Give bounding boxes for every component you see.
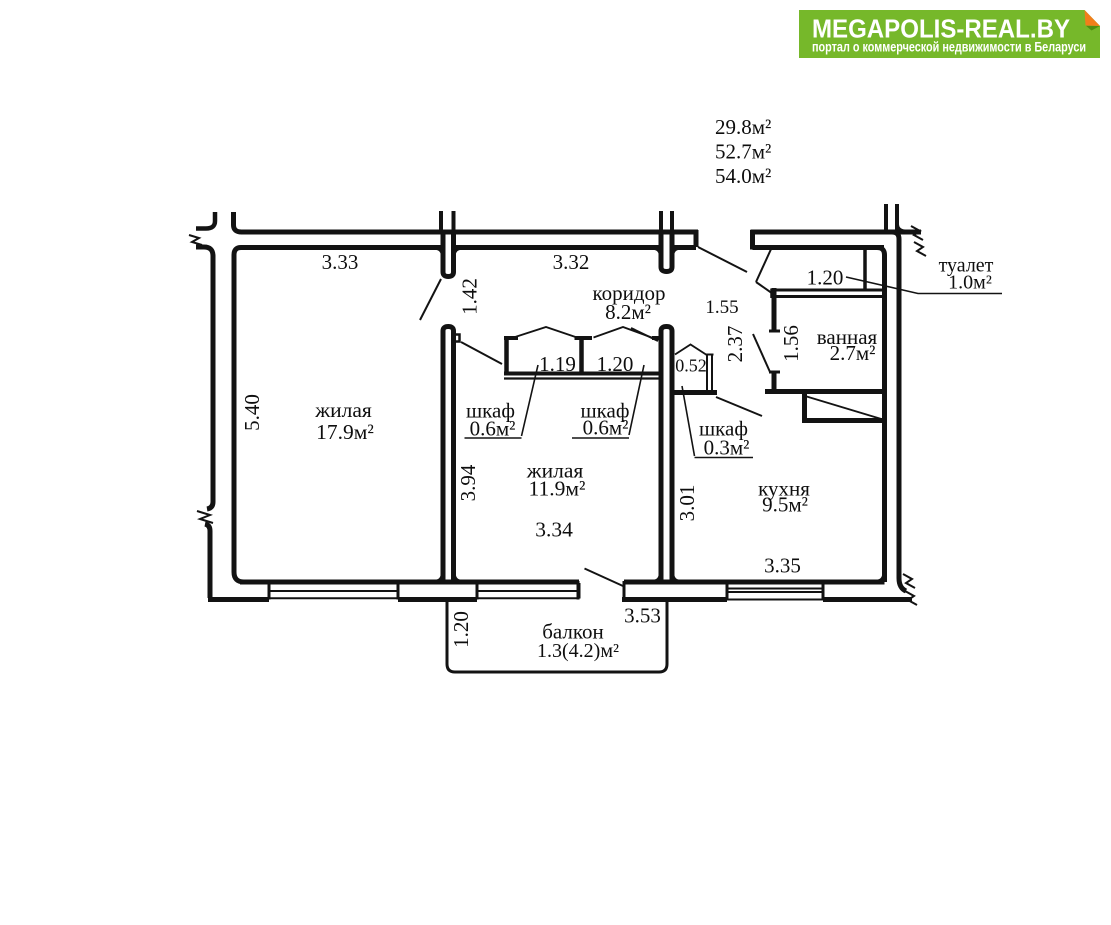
svg-text:52.7м²: 52.7м² bbox=[715, 140, 771, 164]
svg-text:3.33: 3.33 bbox=[322, 250, 359, 274]
svg-text:5.40: 5.40 bbox=[240, 394, 264, 431]
svg-text:1.20: 1.20 bbox=[807, 266, 844, 290]
svg-text:1.20: 1.20 bbox=[597, 352, 634, 376]
svg-text:1.19: 1.19 bbox=[539, 352, 576, 376]
svg-text:3.32: 3.32 bbox=[553, 250, 590, 274]
svg-text:17.9м²: 17.9м² bbox=[316, 420, 374, 444]
svg-text:9.5м²: 9.5м² bbox=[762, 493, 808, 517]
svg-text:1.20: 1.20 bbox=[449, 611, 473, 648]
svg-text:29.8м²: 29.8м² bbox=[715, 115, 771, 139]
svg-text:3.34: 3.34 bbox=[535, 518, 573, 542]
svg-text:11.9м²: 11.9м² bbox=[529, 477, 586, 501]
svg-text:2.37: 2.37 bbox=[723, 326, 747, 363]
svg-text:1.3(4.2)м²: 1.3(4.2)м² bbox=[537, 640, 619, 662]
svg-text:1.0м²: 1.0м² bbox=[948, 272, 992, 294]
svg-text:3.01: 3.01 bbox=[675, 485, 699, 522]
svg-text:жилая: жилая bbox=[314, 398, 372, 422]
svg-text:0.3м²: 0.3м² bbox=[704, 436, 750, 460]
svg-text:8.2м²: 8.2м² bbox=[605, 300, 651, 324]
svg-text:1.56: 1.56 bbox=[779, 325, 803, 362]
svg-text:0.52: 0.52 bbox=[675, 356, 707, 376]
svg-text:54.0м²: 54.0м² bbox=[715, 164, 771, 188]
svg-text:портал о коммерческой недвижим: портал о коммерческой недвижимости в Бел… bbox=[812, 40, 1086, 56]
svg-text:1.42: 1.42 bbox=[458, 278, 482, 315]
svg-text:3.53: 3.53 bbox=[624, 604, 661, 628]
svg-text:1.55: 1.55 bbox=[705, 297, 738, 318]
svg-text:2.7м²: 2.7м² bbox=[830, 341, 876, 365]
svg-text:3.94: 3.94 bbox=[456, 464, 480, 501]
svg-text:0.6м²: 0.6м² bbox=[583, 416, 629, 440]
svg-text:3.35: 3.35 bbox=[764, 554, 801, 578]
svg-text:0.6м²: 0.6м² bbox=[470, 417, 516, 441]
